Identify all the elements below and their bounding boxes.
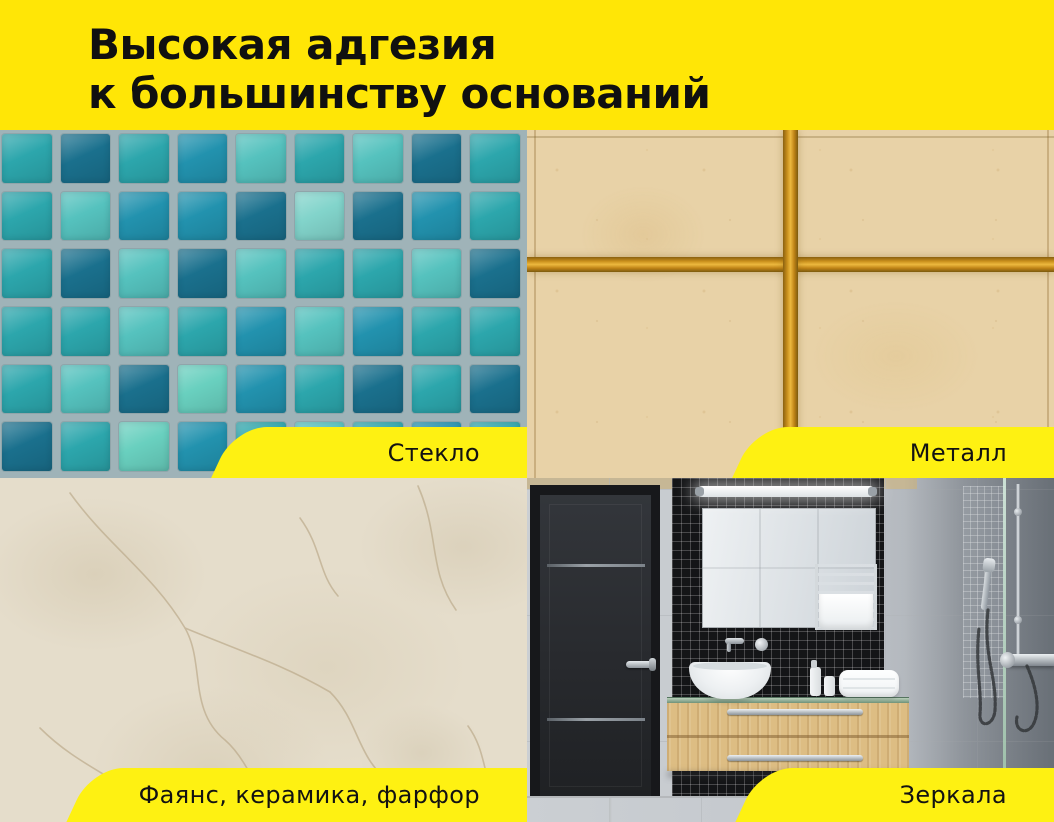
shower-mixer xyxy=(1005,654,1054,666)
mosaic-tile xyxy=(119,249,169,298)
mosaic-tile xyxy=(61,365,111,414)
mosaic-tile xyxy=(119,422,169,471)
door-handle xyxy=(626,661,654,668)
shower-rail xyxy=(1016,484,1020,664)
photo-metal-grout-tiles: Металл xyxy=(527,130,1054,478)
vanity-drawer-gap xyxy=(667,735,909,738)
gold-grout-vertical xyxy=(783,130,798,478)
mosaic-tile xyxy=(2,307,52,356)
substrate-label-glass: Стекло xyxy=(223,427,527,478)
mosaic-tile xyxy=(295,365,345,414)
slide-header: Высокая адгезия к большинству оснований xyxy=(0,0,1054,130)
mosaic-tile xyxy=(2,365,52,414)
mosaic-tile xyxy=(2,134,52,183)
hanging-towel xyxy=(819,594,873,630)
mosaic-tile xyxy=(178,192,228,241)
substrate-label-ceramic: Фаянс, керамика, фарфор xyxy=(79,768,527,822)
wall-faucet-spout xyxy=(725,638,744,644)
wall-faucet-knob xyxy=(755,638,768,651)
dark-door xyxy=(540,495,651,796)
photo-bathroom-mirror: Зеркала xyxy=(527,478,1054,822)
mosaic-tile xyxy=(353,192,403,241)
mosaic-tile xyxy=(412,365,462,414)
photo-ceramic-surface: Фаянс, керамика, фарфор xyxy=(0,478,527,822)
mosaic-tile xyxy=(119,134,169,183)
tile-seam xyxy=(534,130,536,478)
mosaic-tile xyxy=(61,249,111,298)
mosaic-tile xyxy=(236,134,286,183)
mosaic-tile xyxy=(295,249,345,298)
mosaic-tile xyxy=(412,192,462,241)
door-chrome-strip xyxy=(547,718,645,721)
headline-line-2: к большинству оснований xyxy=(88,69,710,118)
glass-countertop xyxy=(667,697,909,703)
mosaic-tile xyxy=(295,134,345,183)
mosaic-tile xyxy=(412,249,462,298)
mosaic-tile xyxy=(2,422,52,471)
mosaic-tile xyxy=(236,192,286,241)
mosaic-tile xyxy=(470,249,520,298)
mosaic-tile xyxy=(295,307,345,356)
drawer-handle xyxy=(727,709,863,715)
mosaic-tile xyxy=(412,307,462,356)
mosaic-tile xyxy=(470,307,520,356)
mosaic-tile xyxy=(353,134,403,183)
mosaic-tile xyxy=(236,249,286,298)
tile-seam xyxy=(1047,130,1049,478)
mosaic-tile xyxy=(119,192,169,241)
substrate-label-mirrors: Зеркала xyxy=(748,768,1054,822)
mosaic-tile xyxy=(119,365,169,414)
door-chrome-strip xyxy=(547,564,645,567)
mosaic-tile xyxy=(236,307,286,356)
mosaic-tile xyxy=(236,365,286,414)
mosaic-tile xyxy=(2,249,52,298)
folded-towels xyxy=(839,670,899,697)
mosaic-tile xyxy=(470,365,520,414)
mosaic-tile xyxy=(61,422,111,471)
drawer-handle xyxy=(727,755,863,761)
photo-glass-mosaic: Стекло xyxy=(0,130,527,478)
mosaic-tile xyxy=(470,192,520,241)
shower-glass-edge xyxy=(1003,478,1006,792)
mosaic-tile xyxy=(61,307,111,356)
promo-slide: Высокая адгезия к большинству оснований … xyxy=(0,0,1054,822)
mosaic-tile xyxy=(178,134,228,183)
soap-bottle xyxy=(810,667,821,696)
headline-line-1: Высокая адгезия xyxy=(88,20,710,69)
mosaic-tile xyxy=(353,249,403,298)
mosaic-tile xyxy=(178,249,228,298)
mosaic-tile xyxy=(178,307,228,356)
substrate-label-metal: Металл xyxy=(744,427,1054,478)
soap-cup xyxy=(824,676,835,696)
substrate-label-glass-text: Стекло xyxy=(223,427,527,478)
substrate-label-metal-text: Металл xyxy=(744,427,1054,478)
substrate-label-ceramic-text: Фаянс, керамика, фарфор xyxy=(79,768,527,822)
mosaic-tile xyxy=(470,134,520,183)
mirror-light-bar xyxy=(697,486,875,497)
mosaic-tile xyxy=(61,192,111,241)
mosaic-tile xyxy=(61,134,111,183)
mosaic-tile xyxy=(412,134,462,183)
mosaic-tile xyxy=(2,192,52,241)
mosaic-tile xyxy=(178,365,228,414)
glass-mosaic-grid xyxy=(0,130,527,478)
mosaic-tile xyxy=(119,307,169,356)
mosaic-tile xyxy=(353,365,403,414)
mosaic-tile xyxy=(353,307,403,356)
mosaic-tile xyxy=(295,192,345,241)
page-title: Высокая адгезия к большинству оснований xyxy=(88,20,710,118)
substrate-label-mirrors-text: Зеркала xyxy=(748,768,1054,822)
